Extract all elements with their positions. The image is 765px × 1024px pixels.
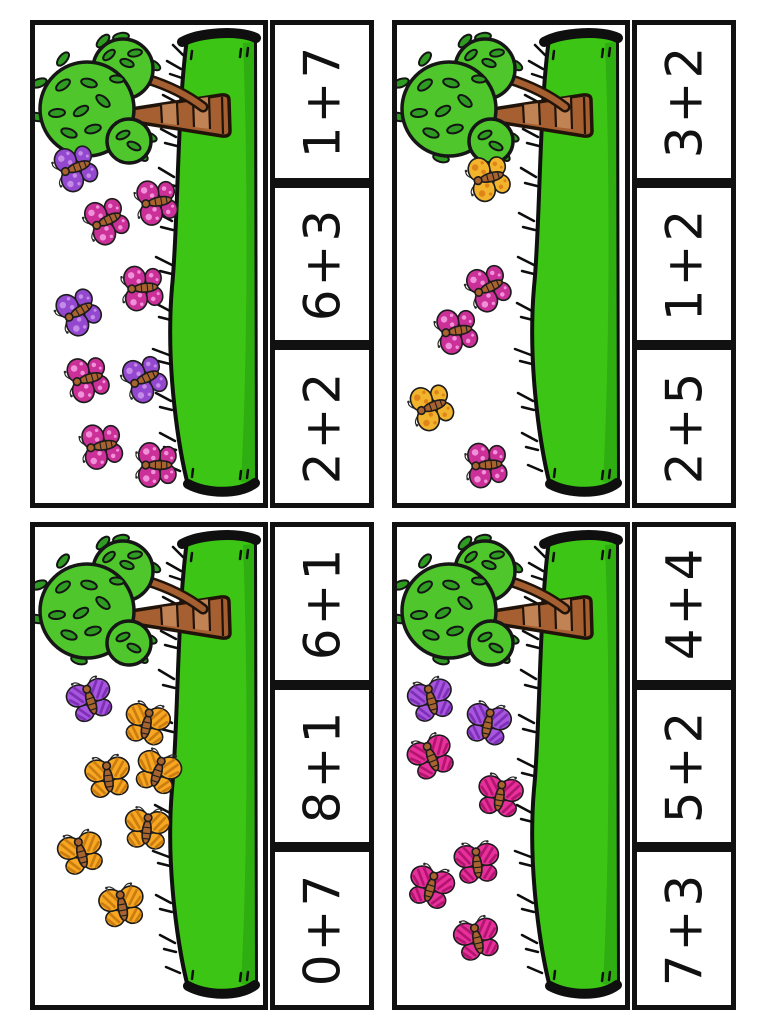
answer-option-2[interactable]: 8+1 — [270, 685, 374, 848]
butterfly-scene — [392, 522, 630, 1010]
clip-card-top-right: 3+2 1+2 2+5 — [392, 20, 736, 508]
answer-option-2[interactable]: 6+3 — [270, 183, 374, 346]
butterfly-pink-spotted — [129, 438, 183, 492]
equation-label: 0+7 — [293, 871, 351, 986]
answer-column: 1+7 6+3 2+2 — [270, 20, 374, 508]
butterfly-layer — [397, 527, 625, 1005]
butterfly-orange-striped — [90, 873, 153, 936]
butterfly-layer — [35, 25, 263, 503]
answer-option-2[interactable]: 1+2 — [632, 183, 736, 346]
clip-card-bottom-left: 6+1 8+1 0+7 — [30, 522, 374, 1010]
answer-column: 6+1 8+1 0+7 — [270, 522, 374, 1010]
butterfly-scene — [392, 20, 630, 508]
butterfly-yellow-spotted — [397, 373, 466, 442]
butterfly-pink-spotted — [425, 300, 488, 363]
equation-label: 3+2 — [655, 44, 713, 159]
butterfly-purple-striped — [456, 691, 520, 755]
equation-label: 1+7 — [293, 44, 351, 159]
equation-label: 6+1 — [293, 546, 351, 661]
equation-label: 2+5 — [655, 369, 713, 484]
butterfly-pink-spotted — [457, 435, 516, 494]
equation-label: 4+4 — [655, 546, 713, 661]
butterfly-layer — [397, 25, 625, 503]
answer-option-3[interactable]: 7+3 — [632, 847, 736, 1010]
answer-option-1[interactable]: 1+7 — [270, 20, 374, 183]
butterfly-pink-spotted — [113, 259, 172, 318]
butterfly-purple-spotted — [40, 134, 109, 203]
butterfly-purple-striped — [398, 666, 464, 732]
butterfly-pink-striped — [396, 721, 466, 791]
equation-label: 6+3 — [293, 207, 351, 322]
butterfly-pink-striped — [468, 763, 531, 826]
butterfly-pink-spotted — [54, 346, 120, 412]
butterfly-layer — [35, 527, 263, 1005]
butterfly-orange-striped — [117, 798, 176, 857]
equation-label: 7+3 — [655, 871, 713, 986]
answer-option-1[interactable]: 4+4 — [632, 522, 736, 685]
butterfly-orange-striped — [48, 819, 114, 885]
answer-option-2[interactable]: 5+2 — [632, 685, 736, 848]
butterfly-pink-spotted — [125, 171, 188, 234]
answer-option-3[interactable]: 0+7 — [270, 847, 374, 1010]
answer-option-1[interactable]: 3+2 — [632, 20, 736, 183]
equation-label: 5+2 — [655, 709, 713, 824]
answer-column: 4+4 5+2 7+3 — [632, 522, 736, 1010]
butterfly-pink-striped — [444, 905, 509, 970]
equation-label: 8+1 — [293, 709, 351, 824]
butterfly-purple-striped — [56, 665, 124, 733]
butterfly-purple-spotted — [41, 275, 115, 349]
answer-option-3[interactable]: 2+2 — [270, 345, 374, 508]
clip-card-bottom-right: 4+4 5+2 7+3 — [392, 522, 736, 1010]
answer-option-1[interactable]: 6+1 — [270, 522, 374, 685]
butterfly-scene — [30, 522, 268, 1010]
equation-label: 1+2 — [655, 207, 713, 322]
butterfly-scene — [30, 20, 268, 508]
clip-card-top-left: 1+7 6+3 2+2 — [30, 20, 374, 508]
butterfly-yellow-spotted — [455, 145, 521, 211]
answer-column: 3+2 1+2 2+5 — [632, 20, 736, 508]
cards-grid: 1+7 6+3 2+2 — [30, 20, 736, 1010]
butterfly-purple-spotted — [109, 343, 181, 415]
equation-label: 2+2 — [293, 369, 351, 484]
butterfly-pink-spotted — [70, 414, 133, 477]
answer-option-3[interactable]: 2+5 — [632, 345, 736, 508]
